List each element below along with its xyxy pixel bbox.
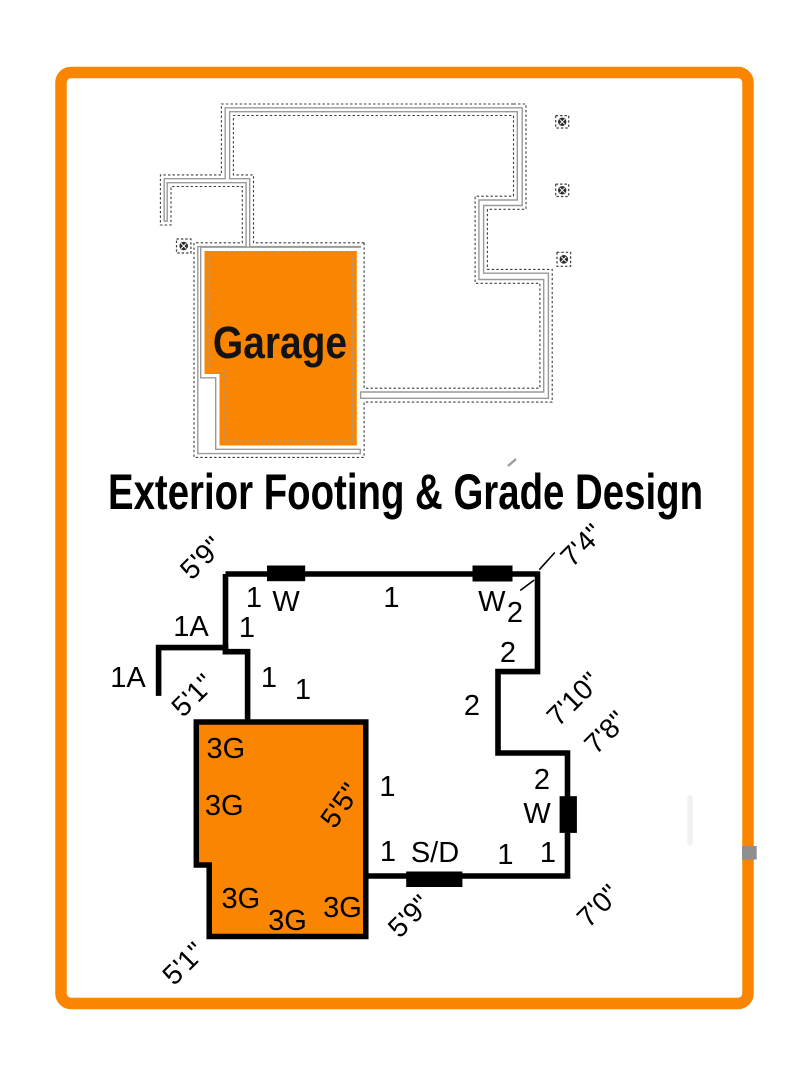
svg-text:1: 1 [540,837,556,869]
svg-text:1: 1 [261,662,277,694]
svg-text:1: 1 [246,582,262,614]
svg-text:1: 1 [295,674,311,706]
svg-text:3G: 3G [268,905,307,937]
svg-text:Garage: Garage [213,317,347,367]
svg-text:1A: 1A [110,662,146,694]
svg-text:2: 2 [464,690,480,722]
svg-text:3G: 3G [323,892,362,924]
svg-text:1: 1 [383,582,399,614]
svg-text:1A: 1A [173,611,209,643]
svg-text:3G: 3G [205,790,244,822]
svg-text:2: 2 [507,597,523,629]
svg-text:S/D: S/D [411,837,459,869]
svg-text:3G: 3G [206,733,245,765]
svg-text:2: 2 [500,637,516,669]
svg-text:Exterior Footing & Grade Desig: Exterior Footing & Grade Design [108,465,703,520]
svg-text:W: W [523,798,551,830]
svg-text:W: W [272,586,300,618]
svg-text:1: 1 [379,771,395,803]
svg-text:2: 2 [534,764,550,796]
svg-text:1: 1 [497,839,513,871]
svg-text:3G: 3G [221,883,260,915]
svg-text:1: 1 [380,836,396,868]
svg-text:W: W [478,586,506,618]
svg-text:1: 1 [239,612,255,644]
